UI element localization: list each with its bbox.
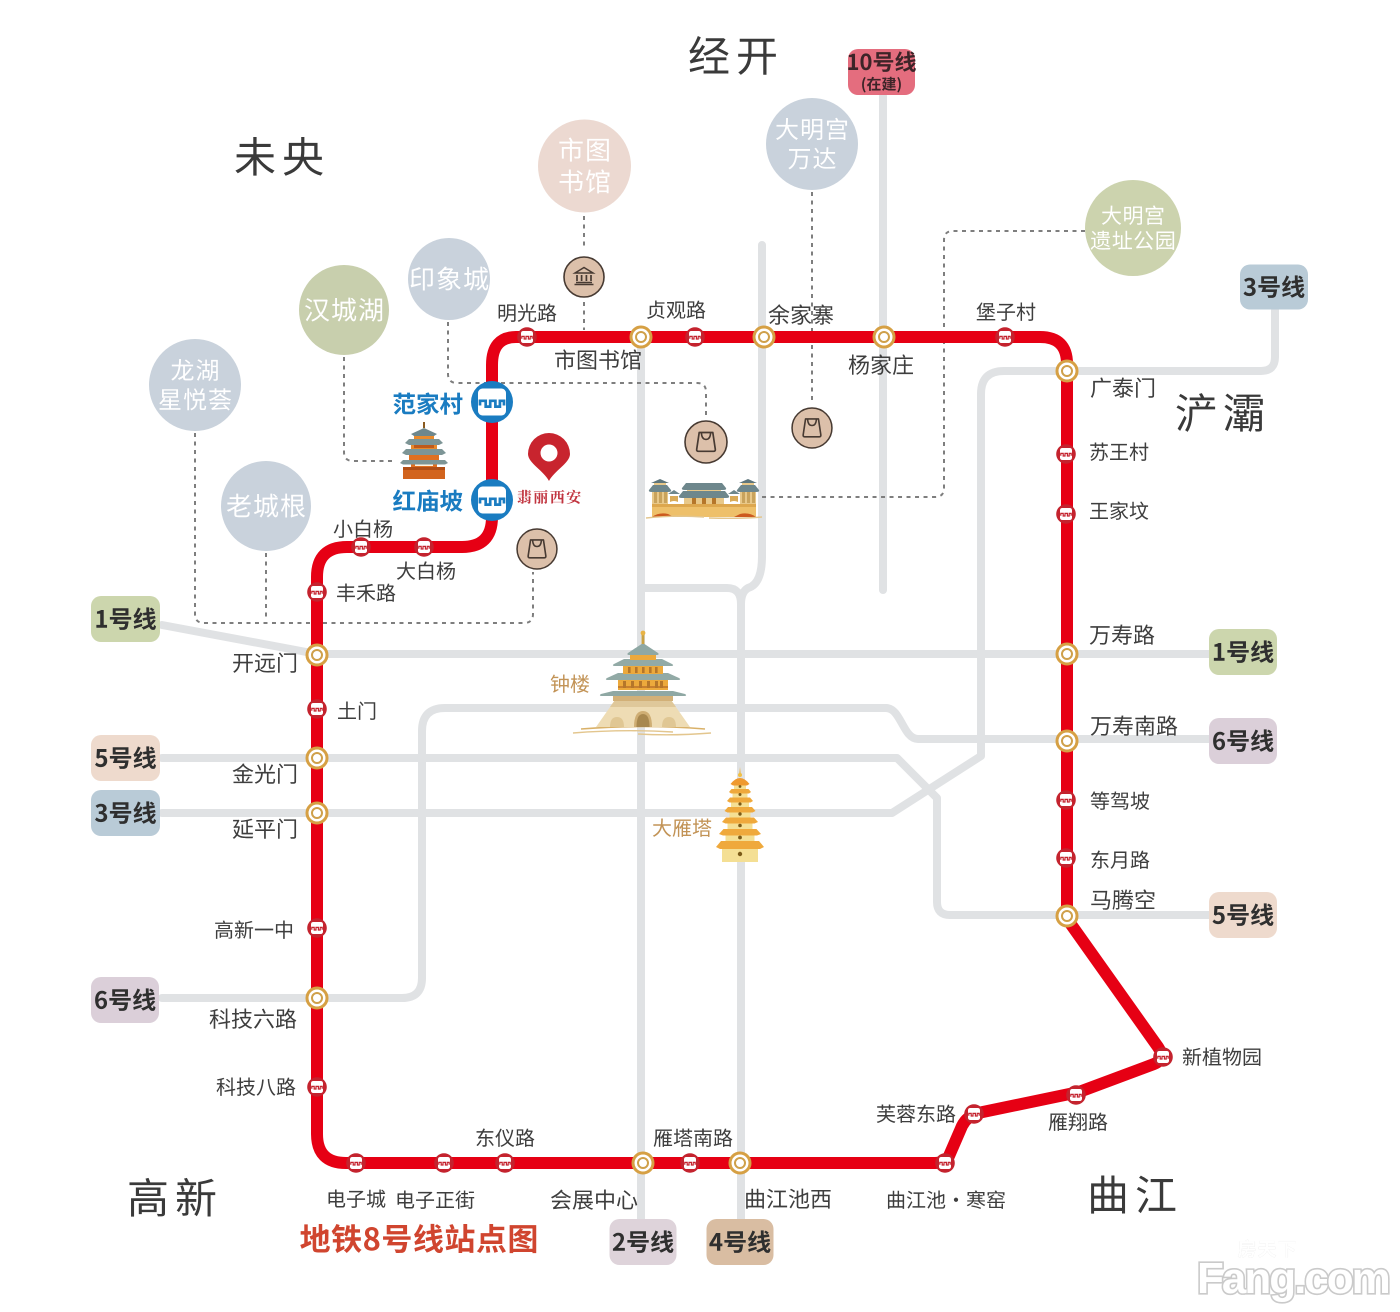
svg-text:Fang.com: Fang.com	[1197, 1254, 1389, 1303]
